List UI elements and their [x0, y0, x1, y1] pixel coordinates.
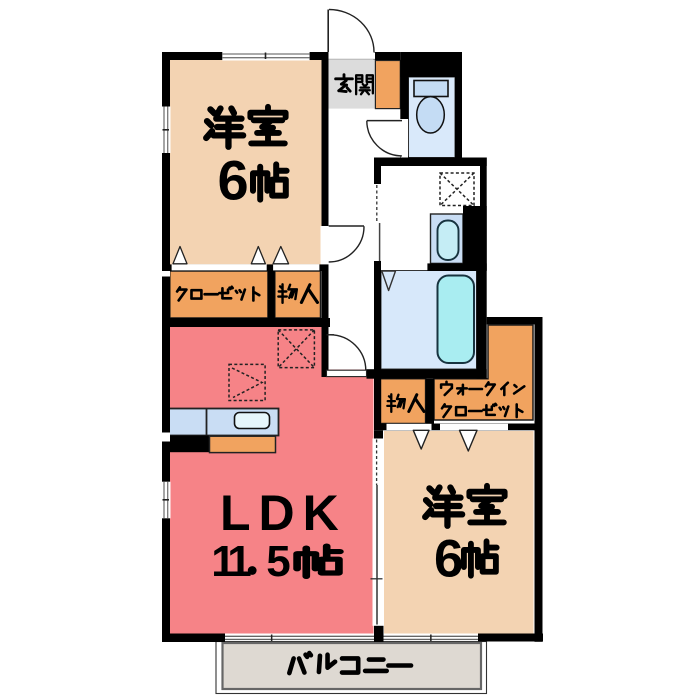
svg-text:5: 5: [266, 537, 290, 586]
svg-text:6: 6: [218, 149, 249, 212]
svg-text:1: 1: [227, 537, 251, 586]
svg-text:LDK: LDK: [220, 485, 347, 541]
svg-text:6: 6: [434, 530, 463, 589]
